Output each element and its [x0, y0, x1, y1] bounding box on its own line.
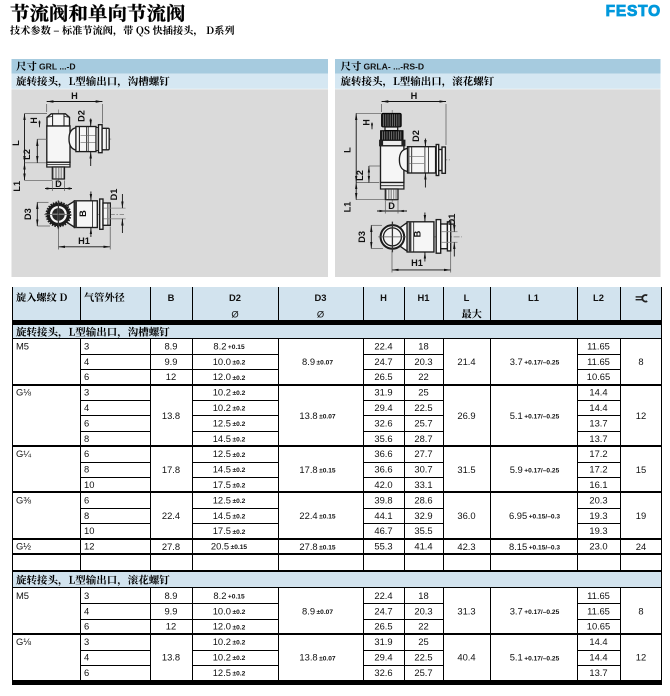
svg-text:10.65: 10.65 — [587, 371, 610, 382]
svg-text:FESTO: FESTO — [606, 3, 661, 20]
svg-text:L2: L2 — [355, 170, 365, 181]
svg-text:L2: L2 — [593, 292, 604, 303]
svg-text:25.7: 25.7 — [414, 417, 432, 428]
svg-text:40.4: 40.4 — [457, 652, 475, 663]
svg-text:Ø: Ø — [231, 309, 238, 320]
svg-text:31.9: 31.9 — [374, 636, 392, 647]
svg-text:36.6: 36.6 — [374, 464, 392, 475]
svg-text:H: H — [362, 119, 372, 125]
svg-text:L: L — [464, 292, 470, 303]
svg-text:6: 6 — [84, 621, 89, 632]
svg-text:Ø: Ø — [317, 309, 324, 320]
svg-text:H: H — [71, 91, 78, 101]
svg-text:9.9: 9.9 — [164, 605, 177, 616]
svg-text:25: 25 — [418, 387, 428, 398]
svg-text:6: 6 — [84, 494, 89, 505]
svg-text:18: 18 — [418, 340, 428, 351]
svg-text:17.8: 17.8 — [162, 464, 180, 475]
svg-text:25: 25 — [418, 636, 428, 647]
svg-text:35.5: 35.5 — [414, 525, 432, 536]
svg-text:D: D — [55, 179, 62, 189]
svg-text:14.4: 14.4 — [589, 387, 607, 398]
svg-text:B: B — [78, 210, 88, 217]
svg-text:H: H — [411, 91, 418, 101]
svg-text:13.8: 13.8 — [162, 410, 180, 421]
svg-text:44.1: 44.1 — [374, 510, 392, 521]
svg-text:H1: H1 — [411, 258, 423, 268]
svg-text:H: H — [29, 117, 39, 123]
svg-text:4: 4 — [84, 605, 89, 616]
svg-text:M5: M5 — [16, 590, 29, 601]
svg-text:20.3: 20.3 — [414, 356, 432, 367]
svg-text:20.3: 20.3 — [589, 494, 607, 505]
svg-text:D3: D3 — [357, 231, 367, 243]
svg-text:19.3: 19.3 — [589, 525, 607, 536]
svg-text:G¼: G¼ — [16, 448, 31, 459]
svg-text:15: 15 — [636, 464, 646, 475]
svg-text:D2: D2 — [411, 130, 421, 142]
svg-text:8: 8 — [84, 510, 89, 521]
svg-text:G⅜: G⅜ — [16, 494, 31, 505]
svg-text:8: 8 — [638, 356, 643, 367]
svg-text:35.6: 35.6 — [374, 433, 392, 444]
svg-text:17.2: 17.2 — [589, 448, 607, 459]
svg-text:6: 6 — [84, 448, 89, 459]
svg-text:12: 12 — [166, 621, 176, 632]
svg-text:17.2: 17.2 — [589, 464, 607, 475]
svg-text:31.3: 31.3 — [457, 606, 475, 617]
svg-text:4: 4 — [84, 402, 89, 413]
svg-text:41.4: 41.4 — [414, 541, 432, 552]
svg-text:28.6: 28.6 — [414, 494, 432, 505]
svg-text:27.8: 27.8 — [162, 541, 180, 552]
svg-text:23.0: 23.0 — [589, 541, 607, 552]
svg-text:26.9: 26.9 — [457, 410, 475, 421]
svg-text:8: 8 — [638, 606, 643, 617]
svg-text:L1: L1 — [12, 181, 22, 192]
svg-text:13.7: 13.7 — [589, 433, 607, 444]
svg-text:46.7: 46.7 — [374, 525, 392, 536]
svg-text:M5: M5 — [16, 340, 29, 351]
svg-text:22.4: 22.4 — [162, 510, 180, 521]
svg-text:D2: D2 — [76, 110, 86, 122]
svg-text:13.7: 13.7 — [589, 417, 607, 428]
svg-text:9.9: 9.9 — [164, 356, 177, 367]
svg-text:L1: L1 — [528, 292, 539, 303]
svg-text:10.65: 10.65 — [587, 621, 610, 632]
svg-text:8.9: 8.9 — [164, 590, 177, 601]
svg-text:31.9: 31.9 — [374, 387, 392, 398]
svg-text:8: 8 — [84, 464, 89, 475]
svg-text:G⅛: G⅛ — [16, 387, 31, 398]
svg-text:6: 6 — [84, 371, 89, 382]
svg-text:H1: H1 — [78, 236, 90, 246]
svg-text:22.5: 22.5 — [414, 402, 432, 413]
svg-text:22.4: 22.4 — [374, 590, 392, 601]
svg-text:55.3: 55.3 — [374, 541, 392, 552]
svg-text:30.7: 30.7 — [414, 464, 432, 475]
svg-text:6: 6 — [84, 417, 89, 428]
svg-text:L1: L1 — [343, 202, 353, 213]
svg-text:19.3: 19.3 — [589, 510, 607, 521]
svg-text:21.4: 21.4 — [457, 356, 475, 367]
svg-text:12: 12 — [636, 652, 646, 663]
svg-text:26.5: 26.5 — [374, 621, 392, 632]
svg-text:4: 4 — [84, 356, 89, 367]
svg-text:42.3: 42.3 — [457, 541, 475, 552]
svg-text:B: B — [168, 292, 175, 303]
svg-text:GRL ...-D: GRL ...-D — [39, 62, 76, 72]
svg-text:20.3: 20.3 — [414, 605, 432, 616]
svg-text:31.5: 31.5 — [457, 464, 475, 475]
svg-text:4: 4 — [84, 652, 89, 663]
svg-text:3: 3 — [84, 340, 89, 351]
svg-text:24.7: 24.7 — [374, 356, 392, 367]
svg-text:3: 3 — [84, 387, 89, 398]
svg-text:29.4: 29.4 — [374, 402, 392, 413]
svg-text:24.7: 24.7 — [374, 605, 392, 616]
svg-text:12: 12 — [166, 371, 176, 382]
svg-text:36.0: 36.0 — [457, 510, 475, 521]
svg-text:11.65: 11.65 — [587, 340, 610, 351]
svg-text:39.8: 39.8 — [374, 494, 392, 505]
svg-text:13.8: 13.8 — [162, 652, 180, 663]
svg-text:3: 3 — [84, 590, 89, 601]
svg-text:12: 12 — [84, 541, 94, 552]
svg-text:28.7: 28.7 — [414, 433, 432, 444]
svg-text:B: B — [413, 230, 423, 237]
svg-text:L2: L2 — [22, 149, 32, 160]
svg-text:D: D — [388, 201, 395, 211]
svg-text:42.0: 42.0 — [374, 479, 392, 490]
svg-text:11.65: 11.65 — [587, 356, 610, 367]
svg-text:8.9: 8.9 — [164, 340, 177, 351]
svg-text:22.5: 22.5 — [414, 652, 432, 663]
svg-text:10: 10 — [84, 479, 94, 490]
svg-text:D1: D1 — [109, 189, 119, 201]
svg-text:D3: D3 — [315, 292, 327, 303]
svg-text:18: 18 — [418, 590, 428, 601]
svg-text:16.1: 16.1 — [589, 479, 607, 490]
svg-text:22.4: 22.4 — [374, 340, 392, 351]
svg-text:11.65: 11.65 — [587, 605, 610, 616]
svg-text:24: 24 — [636, 541, 646, 552]
svg-text:26.5: 26.5 — [374, 371, 392, 382]
svg-text:12: 12 — [636, 410, 646, 421]
svg-text:10: 10 — [84, 525, 94, 536]
svg-text:33.1: 33.1 — [414, 479, 432, 490]
svg-text:D3: D3 — [23, 208, 33, 220]
svg-text:13.7: 13.7 — [589, 667, 607, 678]
svg-text:14.4: 14.4 — [589, 636, 607, 647]
svg-text:H1: H1 — [418, 292, 430, 303]
svg-text:3: 3 — [84, 636, 89, 647]
svg-text:36.6: 36.6 — [374, 448, 392, 459]
svg-text:14.4: 14.4 — [589, 652, 607, 663]
svg-text:11.65: 11.65 — [587, 590, 610, 601]
svg-text:L: L — [343, 147, 353, 153]
svg-text:G½: G½ — [16, 541, 31, 552]
svg-text:L: L — [11, 140, 21, 146]
svg-text:27.7: 27.7 — [414, 448, 432, 459]
svg-text:D2: D2 — [229, 292, 241, 303]
svg-text:25.7: 25.7 — [414, 667, 432, 678]
svg-text:6: 6 — [84, 667, 89, 678]
svg-text:19: 19 — [636, 510, 646, 521]
svg-text:32.6: 32.6 — [374, 417, 392, 428]
svg-text:14.4: 14.4 — [589, 402, 607, 413]
svg-text:32.9: 32.9 — [414, 510, 432, 521]
svg-text:GRLA- ...-RS-D: GRLA- ...-RS-D — [364, 62, 425, 72]
svg-text:22: 22 — [418, 371, 428, 382]
svg-text:32.6: 32.6 — [374, 667, 392, 678]
svg-text:8: 8 — [84, 433, 89, 444]
svg-text:29.4: 29.4 — [374, 652, 392, 663]
svg-text:G⅛: G⅛ — [16, 636, 31, 647]
svg-text:22: 22 — [418, 621, 428, 632]
svg-text:H: H — [380, 292, 387, 303]
svg-text:D1: D1 — [447, 214, 457, 226]
